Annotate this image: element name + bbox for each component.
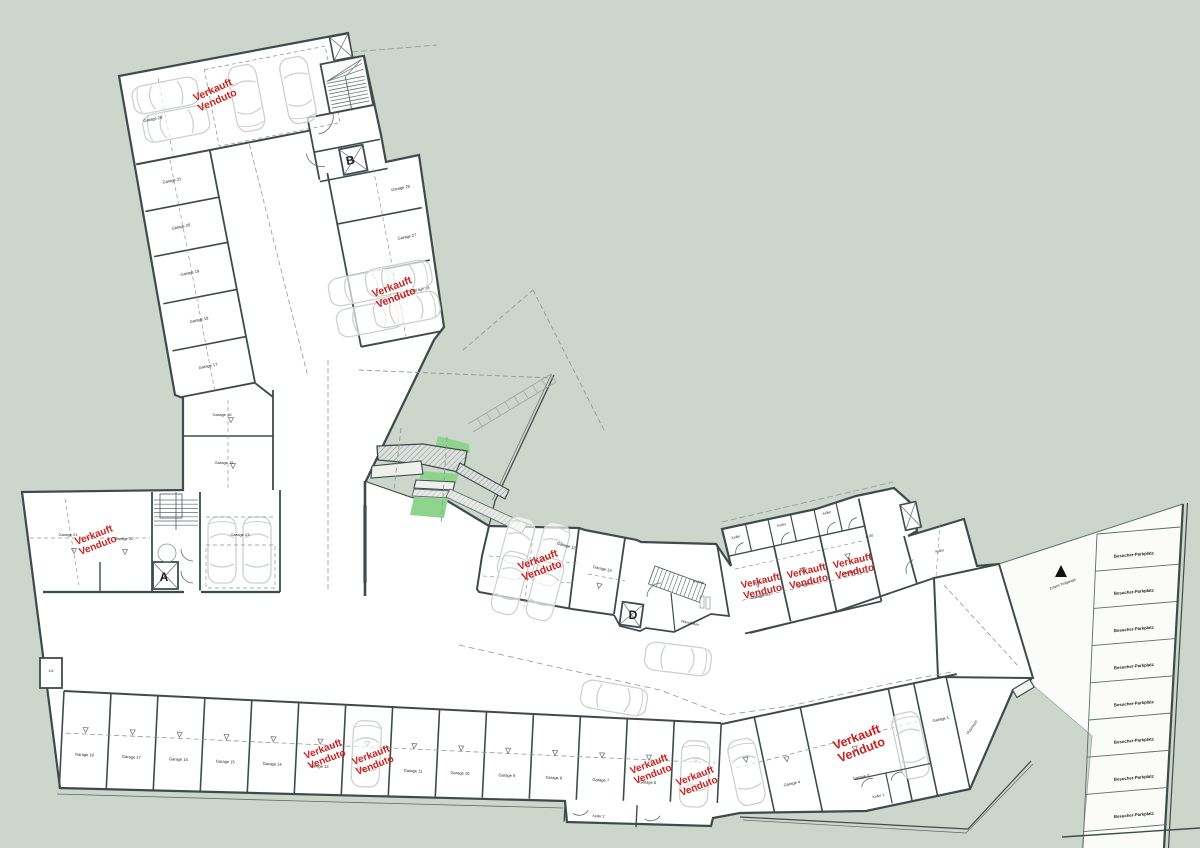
svg-text:D: D	[629, 608, 638, 622]
svg-text:Garage 23: Garage 23	[231, 532, 251, 537]
svg-text:Keller 2: Keller 2	[592, 814, 604, 819]
svg-text:Garage 14: Garage 14	[263, 761, 283, 767]
svg-text:Garage 10: Garage 10	[450, 770, 470, 776]
svg-text:Garage 22: Garage 22	[115, 536, 135, 541]
svg-text:Garage 8: Garage 8	[545, 775, 563, 781]
svg-text:Garage 11: Garage 11	[404, 768, 424, 774]
svg-text:Garage 16: Garage 16	[169, 756, 189, 762]
svg-text:Garage 7: Garage 7	[592, 777, 610, 783]
svg-text:Garage 16: Garage 16	[213, 412, 233, 417]
svg-text:Garage 15: Garage 15	[216, 759, 236, 765]
svg-text:A: A	[160, 570, 169, 584]
svg-text:Garage 9: Garage 9	[498, 772, 516, 778]
svg-text:Garage 15: Garage 15	[215, 460, 235, 465]
svg-text:Garage 18: Garage 18	[75, 752, 95, 758]
svg-text:Garage 17: Garage 17	[122, 754, 142, 760]
svg-text:4.6: 4.6	[49, 669, 54, 673]
